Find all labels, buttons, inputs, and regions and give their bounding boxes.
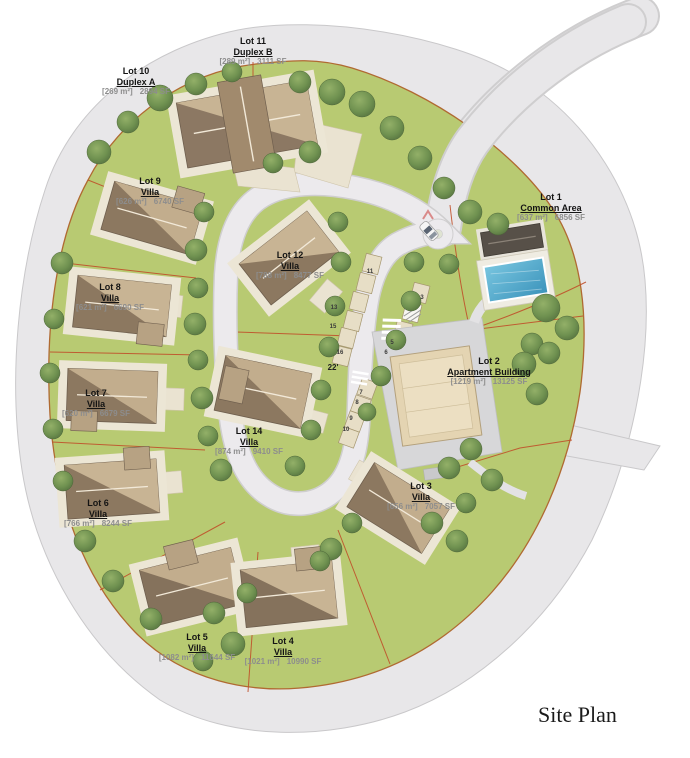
- svg-text:13: 13: [331, 305, 338, 311]
- site-plan-drawing: 3 5 6 7 8 9 10 11 13 15 16: [0, 0, 690, 758]
- house-lot-7: [57, 360, 167, 434]
- svg-text:11: 11: [367, 269, 374, 275]
- road-width-label: 22': [328, 363, 339, 372]
- svg-text:10: 10: [343, 427, 350, 433]
- site-plan-canvas: 3 5 6 7 8 9 10 11 13 15 16 Lot 1 Common …: [0, 0, 690, 758]
- apartment-building: [390, 346, 482, 446]
- svg-text:16: 16: [337, 350, 344, 356]
- svg-text:15: 15: [330, 324, 337, 330]
- drawing-title: Site Plan: [538, 702, 617, 728]
- house-lot-8: [63, 266, 182, 347]
